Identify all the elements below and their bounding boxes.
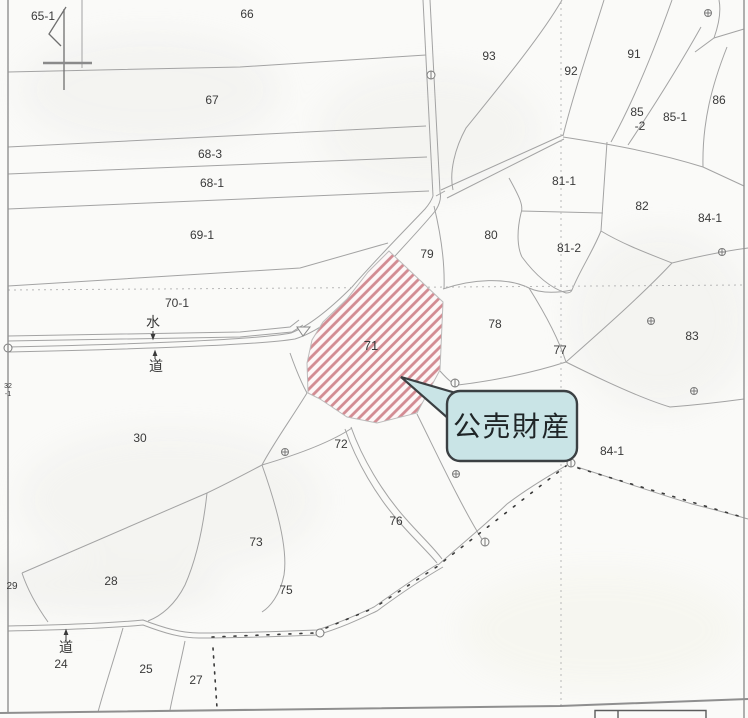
- legend-box-cutoff: [595, 711, 706, 718]
- parcel-label-85-1: 85-1: [663, 110, 687, 124]
- parcel-label-28: 28: [104, 574, 118, 588]
- boundary-point-icon: [705, 10, 712, 17]
- parcel-label--1: -1: [5, 391, 11, 398]
- boundary-point-icon: [691, 388, 698, 395]
- parcel-label-78: 78: [488, 317, 502, 331]
- parcel-label-79: 79: [420, 247, 434, 261]
- parcel-label-91: 91: [627, 47, 641, 61]
- boundary-point-icon: [282, 449, 289, 456]
- parcel-label-76: 76: [389, 514, 403, 528]
- boundary-point-icon: [453, 471, 460, 478]
- parcel-label-83: 83: [685, 329, 699, 343]
- boundary-point-icon: [481, 538, 489, 546]
- parcel-label--2: -2: [635, 119, 646, 133]
- parcel-label-82: 82: [635, 199, 649, 213]
- road-edge: [351, 427, 442, 559]
- parcel-label-92: 92: [564, 64, 578, 78]
- parcel-label-道: 道: [59, 639, 73, 655]
- boundary-point-icon: [316, 629, 324, 637]
- parcel-label-25: 25: [139, 662, 153, 676]
- parcel-label-30: 30: [133, 431, 147, 445]
- parcel-label-道: 道: [149, 358, 163, 374]
- parcel-label-71: 71: [364, 338, 378, 353]
- parcel-label-86: 86: [712, 93, 726, 107]
- boundary-point-icon: [427, 71, 435, 79]
- parcel-label-85: 85: [630, 105, 644, 119]
- parcel-label-27: 27: [189, 673, 203, 687]
- map-canvas: 65-16693929185-285-1866768-368-181-18284…: [0, 0, 748, 718]
- parcel-label-84-1: 84-1: [600, 444, 624, 458]
- parcel-label-93: 93: [482, 49, 496, 63]
- road-triangle-marker-icon: [297, 327, 310, 336]
- road-edge: [345, 429, 437, 563]
- parcel-label-32: 32: [4, 383, 12, 390]
- boundary-point-icon: [451, 379, 459, 387]
- boundary-point-icon: [648, 318, 655, 325]
- parcel-label-29: 29: [6, 581, 18, 592]
- parcel-label-77: 77: [553, 343, 567, 357]
- parcel-label-68-1: 68-1: [200, 176, 224, 190]
- parcel-label-80: 80: [484, 228, 498, 242]
- parcel-label-81-1: 81-1: [552, 174, 576, 188]
- parcel-label-81-2: 81-2: [557, 241, 581, 255]
- boundary-point-icon: [719, 249, 726, 256]
- parcel-label-67: 67: [205, 93, 219, 107]
- callout-text: 公売財産: [453, 411, 571, 442]
- parcel-label-70-1: 70-1: [165, 296, 189, 310]
- parcel-label-72: 72: [334, 437, 348, 451]
- parcel-label-69-1: 69-1: [190, 228, 214, 242]
- parcel-label-75: 75: [279, 583, 293, 597]
- parcel-label-73: 73: [249, 535, 263, 549]
- water-arrow-icon: [151, 331, 154, 339]
- sale-property-callout: 公売財産: [401, 377, 577, 461]
- cadastral-map: 65-16693929185-285-1866768-368-181-18284…: [0, 0, 748, 718]
- parcel-label-84-1: 84-1: [698, 211, 722, 225]
- parcel-label-68-3: 68-3: [198, 147, 222, 161]
- parcel-label-水: 水: [146, 314, 160, 330]
- parcel-label-65-1: 65-1: [31, 9, 55, 23]
- parcel-label-66: 66: [240, 7, 254, 21]
- parcel-label-24: 24: [54, 657, 68, 671]
